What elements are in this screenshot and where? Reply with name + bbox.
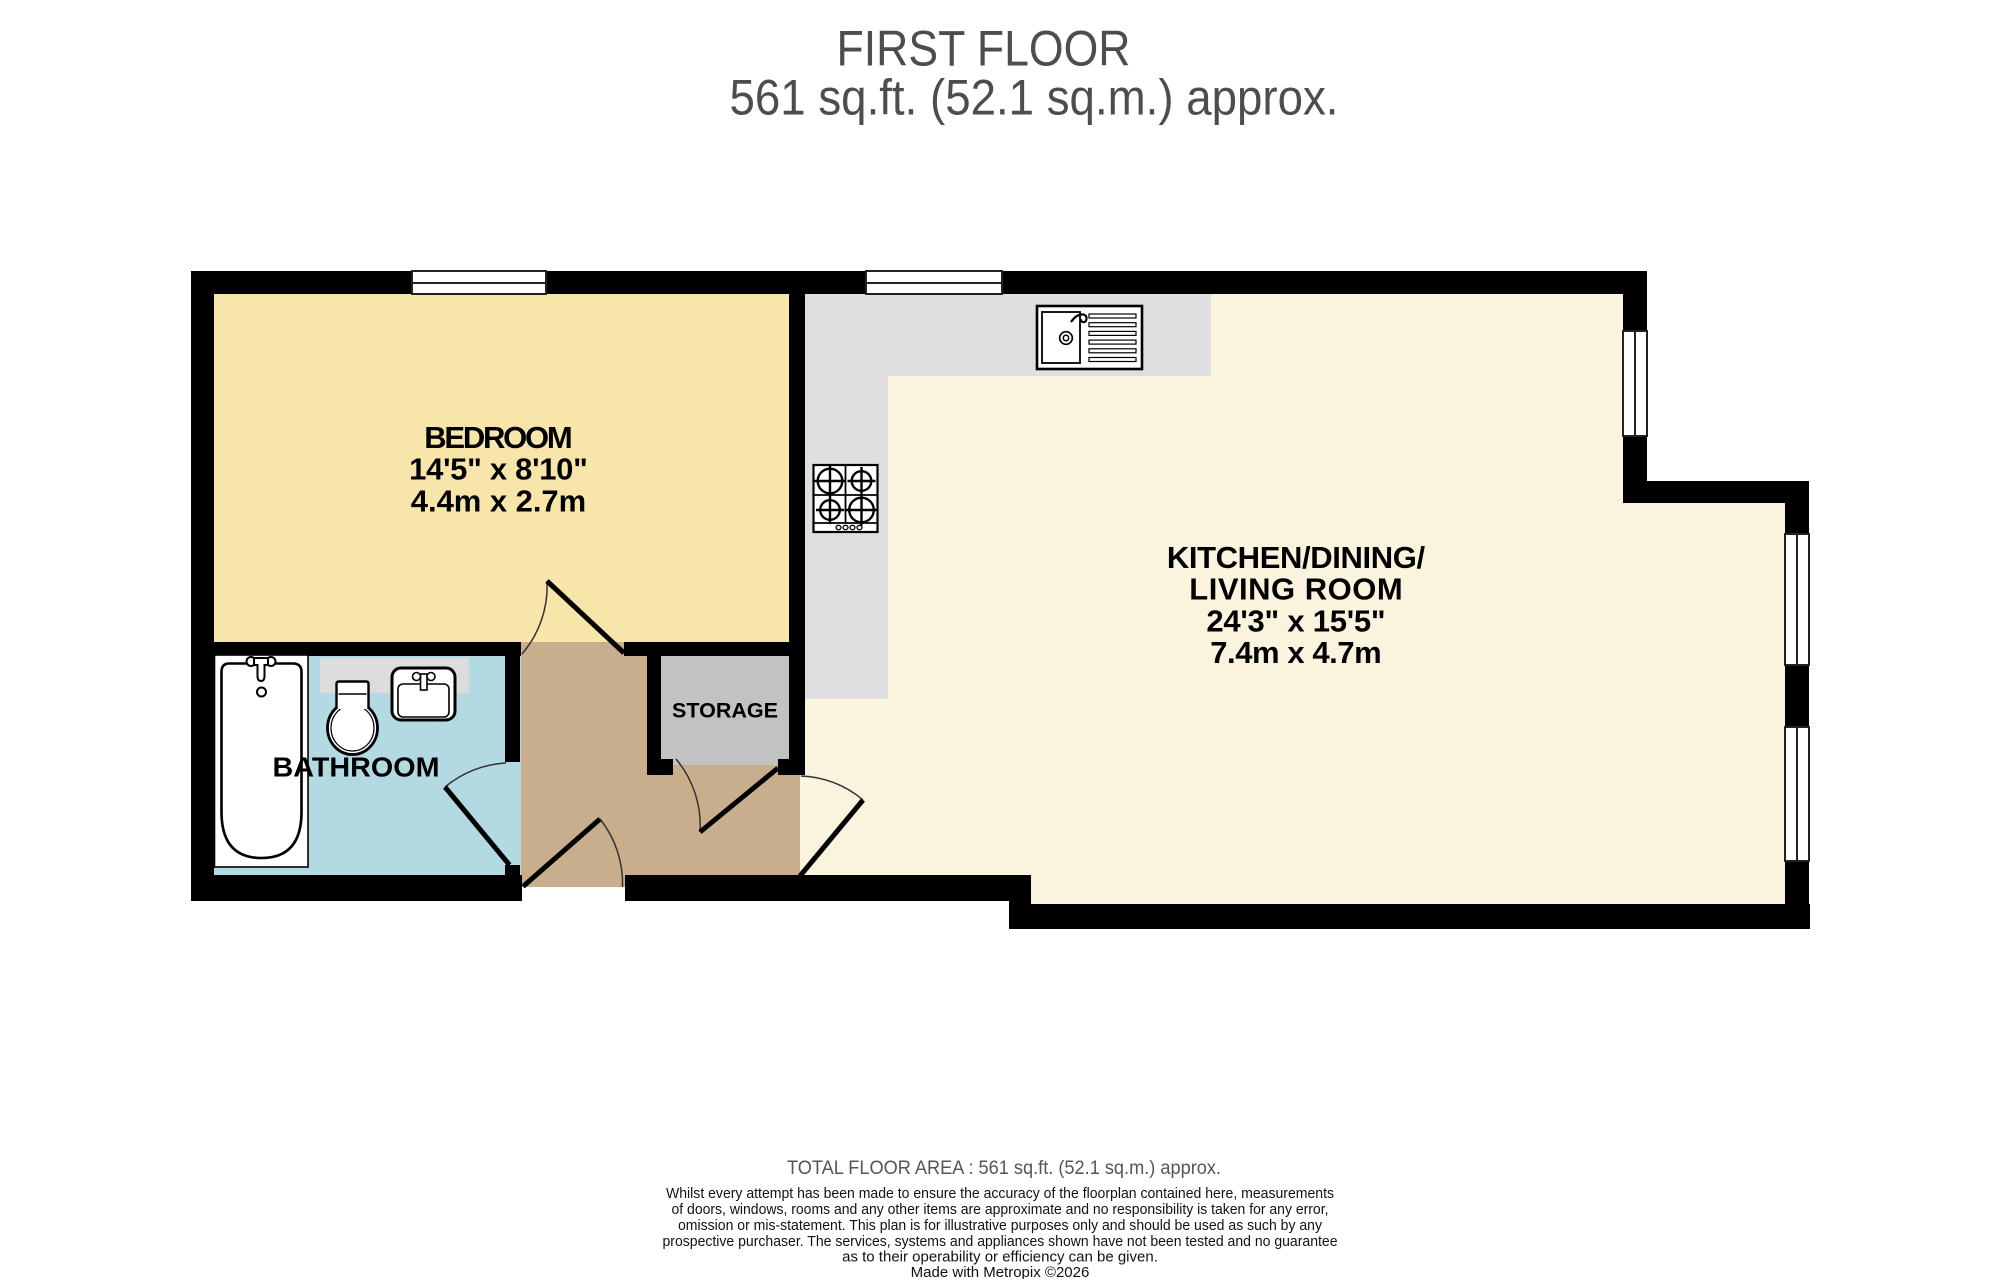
svg-text:of doors, windows, rooms and a: of doors, windows, rooms and any other i… xyxy=(672,1201,1329,1218)
svg-text:7.4m x 4.7m: 7.4m x 4.7m xyxy=(1210,635,1382,670)
svg-text:Whilst every attempt has been: Whilst every attempt has been made to en… xyxy=(666,1185,1334,1202)
svg-text:STORAGE: STORAGE xyxy=(672,700,778,723)
svg-text:LIVING ROOM: LIVING ROOM xyxy=(1189,572,1403,607)
svg-text:KITCHEN/DINING/: KITCHEN/DINING/ xyxy=(1167,540,1426,575)
svg-text:Made with Metropix ©2026: Made with Metropix ©2026 xyxy=(911,1264,1090,1279)
svg-text:24'3" x 15'5": 24'3" x 15'5" xyxy=(1206,603,1385,638)
svg-text:14'5" x 8'10": 14'5" x 8'10" xyxy=(409,452,588,487)
svg-text:omission or mis-statement. Thi: omission or mis-statement. This plan is … xyxy=(678,1217,1322,1234)
svg-text:4.4m x 2.7m: 4.4m x 2.7m xyxy=(411,483,586,518)
svg-text:561 sq.ft. (52.1 sq.m.) approx: 561 sq.ft. (52.1 sq.m.) approx. xyxy=(730,70,1339,126)
svg-text:prospective purchaser. The ser: prospective purchaser. The services, sys… xyxy=(663,1233,1338,1250)
svg-text:as to their operability or eff: as to their operability or efficiency ca… xyxy=(842,1249,1158,1266)
svg-text:BATHROOM: BATHROOM xyxy=(273,752,440,783)
svg-text:BEDROOM: BEDROOM xyxy=(424,420,573,455)
svg-text:FIRST FLOOR: FIRST FLOOR xyxy=(837,21,1131,77)
svg-text:TOTAL FLOOR AREA : 561 sq.ft.: TOTAL FLOOR AREA : 561 sq.ft. (52.1 sq.m… xyxy=(787,1158,1221,1179)
